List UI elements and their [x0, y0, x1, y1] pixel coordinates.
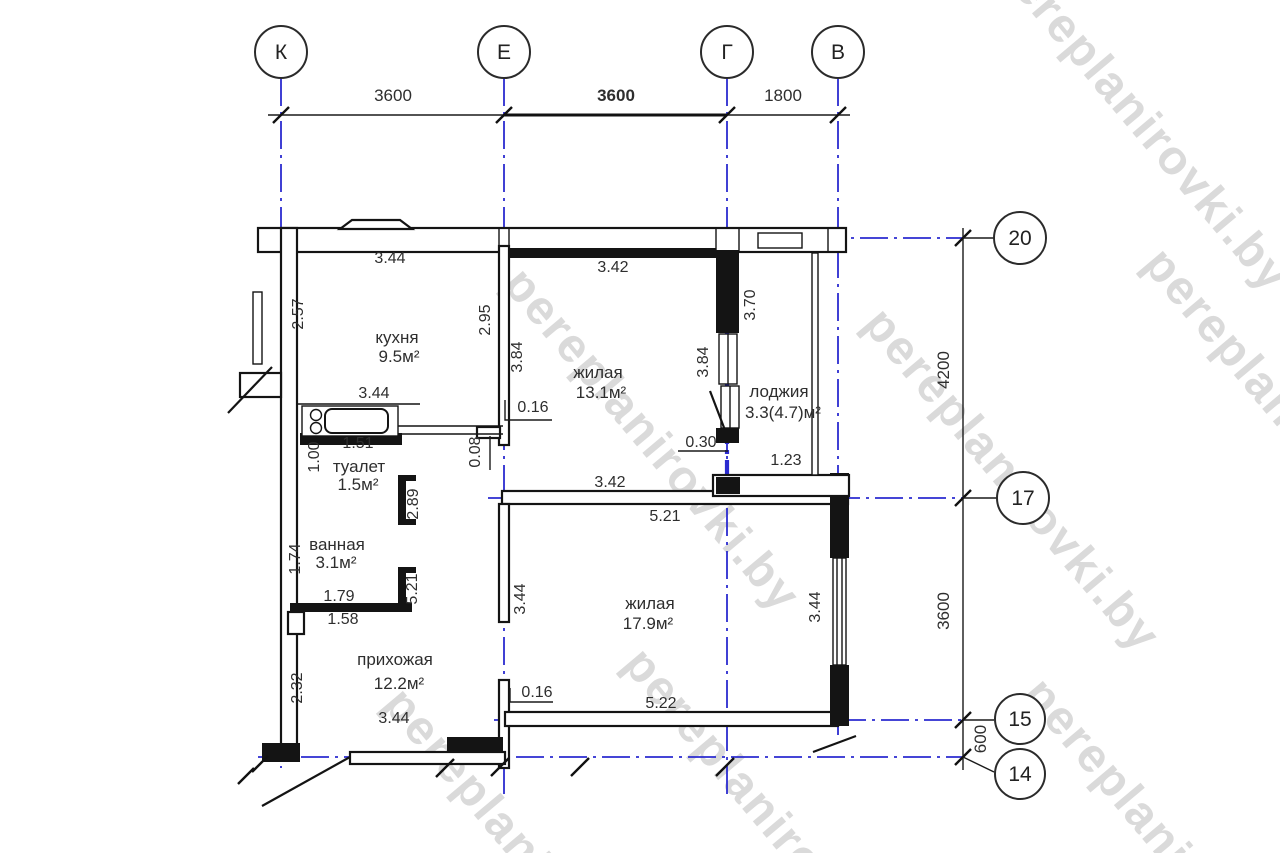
wall-right-end-hatch	[813, 736, 856, 752]
wall-hall-bottom	[350, 752, 505, 764]
dim-room131-right: 3.84	[695, 346, 712, 377]
axis-label-G: Г	[721, 41, 732, 64]
room-loggia-area: 3.3(4.7)м²	[745, 403, 821, 422]
dim-bath-width-bottom: 1.58	[327, 611, 358, 628]
room-hall-name: прихожая	[357, 650, 433, 669]
kitchen-window-bump	[340, 220, 412, 229]
wall-loggia-bottom-pier	[716, 477, 740, 494]
dim-room179-bottom: 5.22	[645, 695, 676, 712]
dim-top-1800: 1800	[764, 86, 802, 105]
axis-label-14: 14	[1008, 763, 1032, 786]
room-living2-area: 17.9м²	[623, 614, 674, 633]
dim-kitchen-right: 2.95	[477, 304, 494, 335]
window-right	[833, 558, 846, 665]
room-bath-name: ванная	[309, 535, 365, 554]
wall-bottom-left-pier	[262, 743, 300, 762]
wall-hall-bottom-pier	[447, 737, 503, 752]
dim-hall-width: 3.44	[378, 710, 409, 727]
wall-box-below-bath	[288, 612, 304, 634]
neighbor-wall-stub	[253, 292, 262, 364]
room-living1-area: 13.1м²	[576, 383, 627, 402]
wall-loggia-partition-upper	[716, 250, 739, 333]
dim-loggia-height: 3.70	[742, 289, 759, 320]
dim-toilet-wall: 2.89	[405, 488, 422, 519]
dim-room131-pier: 0.30	[685, 434, 716, 451]
dim-kitchen-top: 3.44	[374, 250, 405, 267]
room-bath-area: 3.1м²	[316, 553, 357, 572]
wall-room179-left	[499, 504, 509, 622]
watermark-text: pereplanirovki.by	[613, 638, 931, 853]
dim-bath-width-top: 1.79	[323, 588, 354, 605]
loggia-glazing	[812, 253, 818, 475]
dim-right-3600: 3600	[934, 592, 953, 630]
dim-top-3600b: 3600	[597, 86, 635, 105]
room-toilet-area: 1.5м²	[338, 475, 379, 494]
dim-room131-top: 3.42	[597, 259, 628, 276]
leader-circle-14	[963, 757, 994, 772]
wall-right-lower	[830, 665, 849, 726]
dim-kitchen-sink: 1.51	[342, 435, 373, 452]
dim-room131-stub: 0.08	[467, 436, 484, 467]
kitchen-fixtures	[296, 404, 503, 436]
watermark-text: pereplanirovki.by	[493, 258, 811, 623]
floor-plan-drawing: pereplanirovki.by pereplanirovki.by pere…	[0, 0, 1280, 853]
room-living1-name: жилая	[573, 363, 622, 382]
main-dim-texts: 3600 3600 1800 4200 3600 600	[374, 86, 990, 753]
dim-room131-wall: 0.16	[517, 399, 548, 416]
room-toilet-name: туалет	[333, 457, 386, 476]
sink-icon	[325, 409, 388, 433]
axis-label-K: К	[275, 41, 288, 64]
axis-label-17: 17	[1011, 487, 1034, 510]
dim-room179-wall: 0.16	[521, 684, 552, 701]
wall-room179-bottom	[505, 712, 838, 726]
dim-room131-bottom: 3.42	[594, 474, 625, 491]
loggia-window-recess	[758, 233, 802, 248]
axis-label-V: В	[831, 41, 845, 64]
dim-loggia-width: 1.23	[770, 452, 801, 469]
dim-room179-left: 3.44	[512, 583, 529, 614]
wall-kitchen-room-partition	[499, 246, 509, 445]
dim-room131-left: 3.84	[509, 341, 526, 372]
wall-stub-008	[477, 427, 500, 438]
dim-right-600: 600	[971, 725, 990, 753]
wall-room131-top-inner	[509, 248, 716, 258]
axis-label-20: 20	[1008, 227, 1031, 250]
entrance-door-leaf	[262, 757, 350, 806]
watermark-text: pereplanirovki.by	[1013, 668, 1280, 853]
dim-bath-wall: 5.21	[404, 573, 421, 604]
floor-plan-page: pereplanirovki.by pereplanirovki.by pere…	[0, 0, 1280, 853]
axis-label-E: Е	[497, 41, 511, 64]
dim-hall-left: 2.32	[289, 672, 306, 703]
dim-room179-top: 5.21	[649, 508, 680, 525]
room-living2-name: жилая	[625, 594, 674, 613]
dim-top-3600a: 3600	[374, 86, 412, 105]
room-loggia-name: лоджия	[749, 382, 808, 401]
room-hall-area: 12.2м²	[374, 674, 425, 693]
dim-toilet-door: 1.00	[306, 441, 323, 472]
dim-bath-left: 1.74	[287, 543, 304, 574]
axis-label-15: 15	[1008, 708, 1031, 731]
dim-kitchen-counter: 3.44	[358, 385, 389, 402]
dim-right-4200: 4200	[934, 351, 953, 389]
dim-room179-right: 3.44	[807, 591, 824, 622]
dim-kitchen-left: 2.57	[290, 298, 307, 329]
room-kitchen-area: 9.5м²	[379, 347, 420, 366]
room-kitchen-name: кухня	[375, 328, 418, 347]
